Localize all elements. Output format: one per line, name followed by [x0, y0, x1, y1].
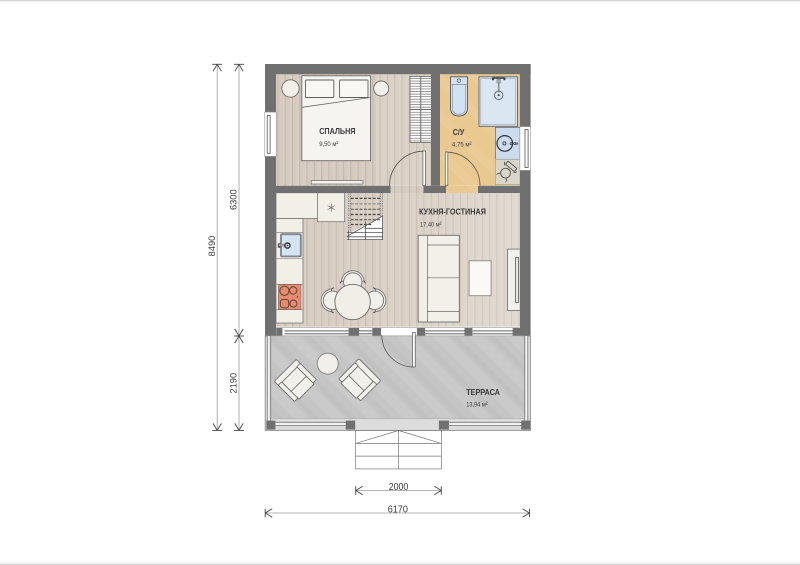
svg-text:2190: 2190	[229, 373, 239, 394]
svg-text:17,40 м²: 17,40 м²	[420, 222, 442, 229]
svg-text:6300: 6300	[229, 189, 239, 210]
svg-text:6170: 6170	[388, 505, 408, 516]
svg-text:С/У: С/У	[453, 127, 465, 137]
svg-text:СПАЛЬНЯ: СПАЛЬНЯ	[319, 126, 355, 136]
svg-text:2000: 2000	[389, 482, 409, 493]
svg-text:13,94 м²: 13,94 м²	[466, 402, 488, 409]
svg-text:8490: 8490	[207, 236, 217, 257]
svg-text:ТЕРРАСА: ТЕРРАСА	[466, 387, 500, 397]
svg-text:9,50 м²: 9,50 м²	[319, 141, 339, 148]
svg-text:КУХНЯ-ГОСТИНАЯ: КУХНЯ-ГОСТИНАЯ	[419, 207, 486, 217]
svg-text:4,75 м²: 4,75 м²	[452, 141, 472, 148]
